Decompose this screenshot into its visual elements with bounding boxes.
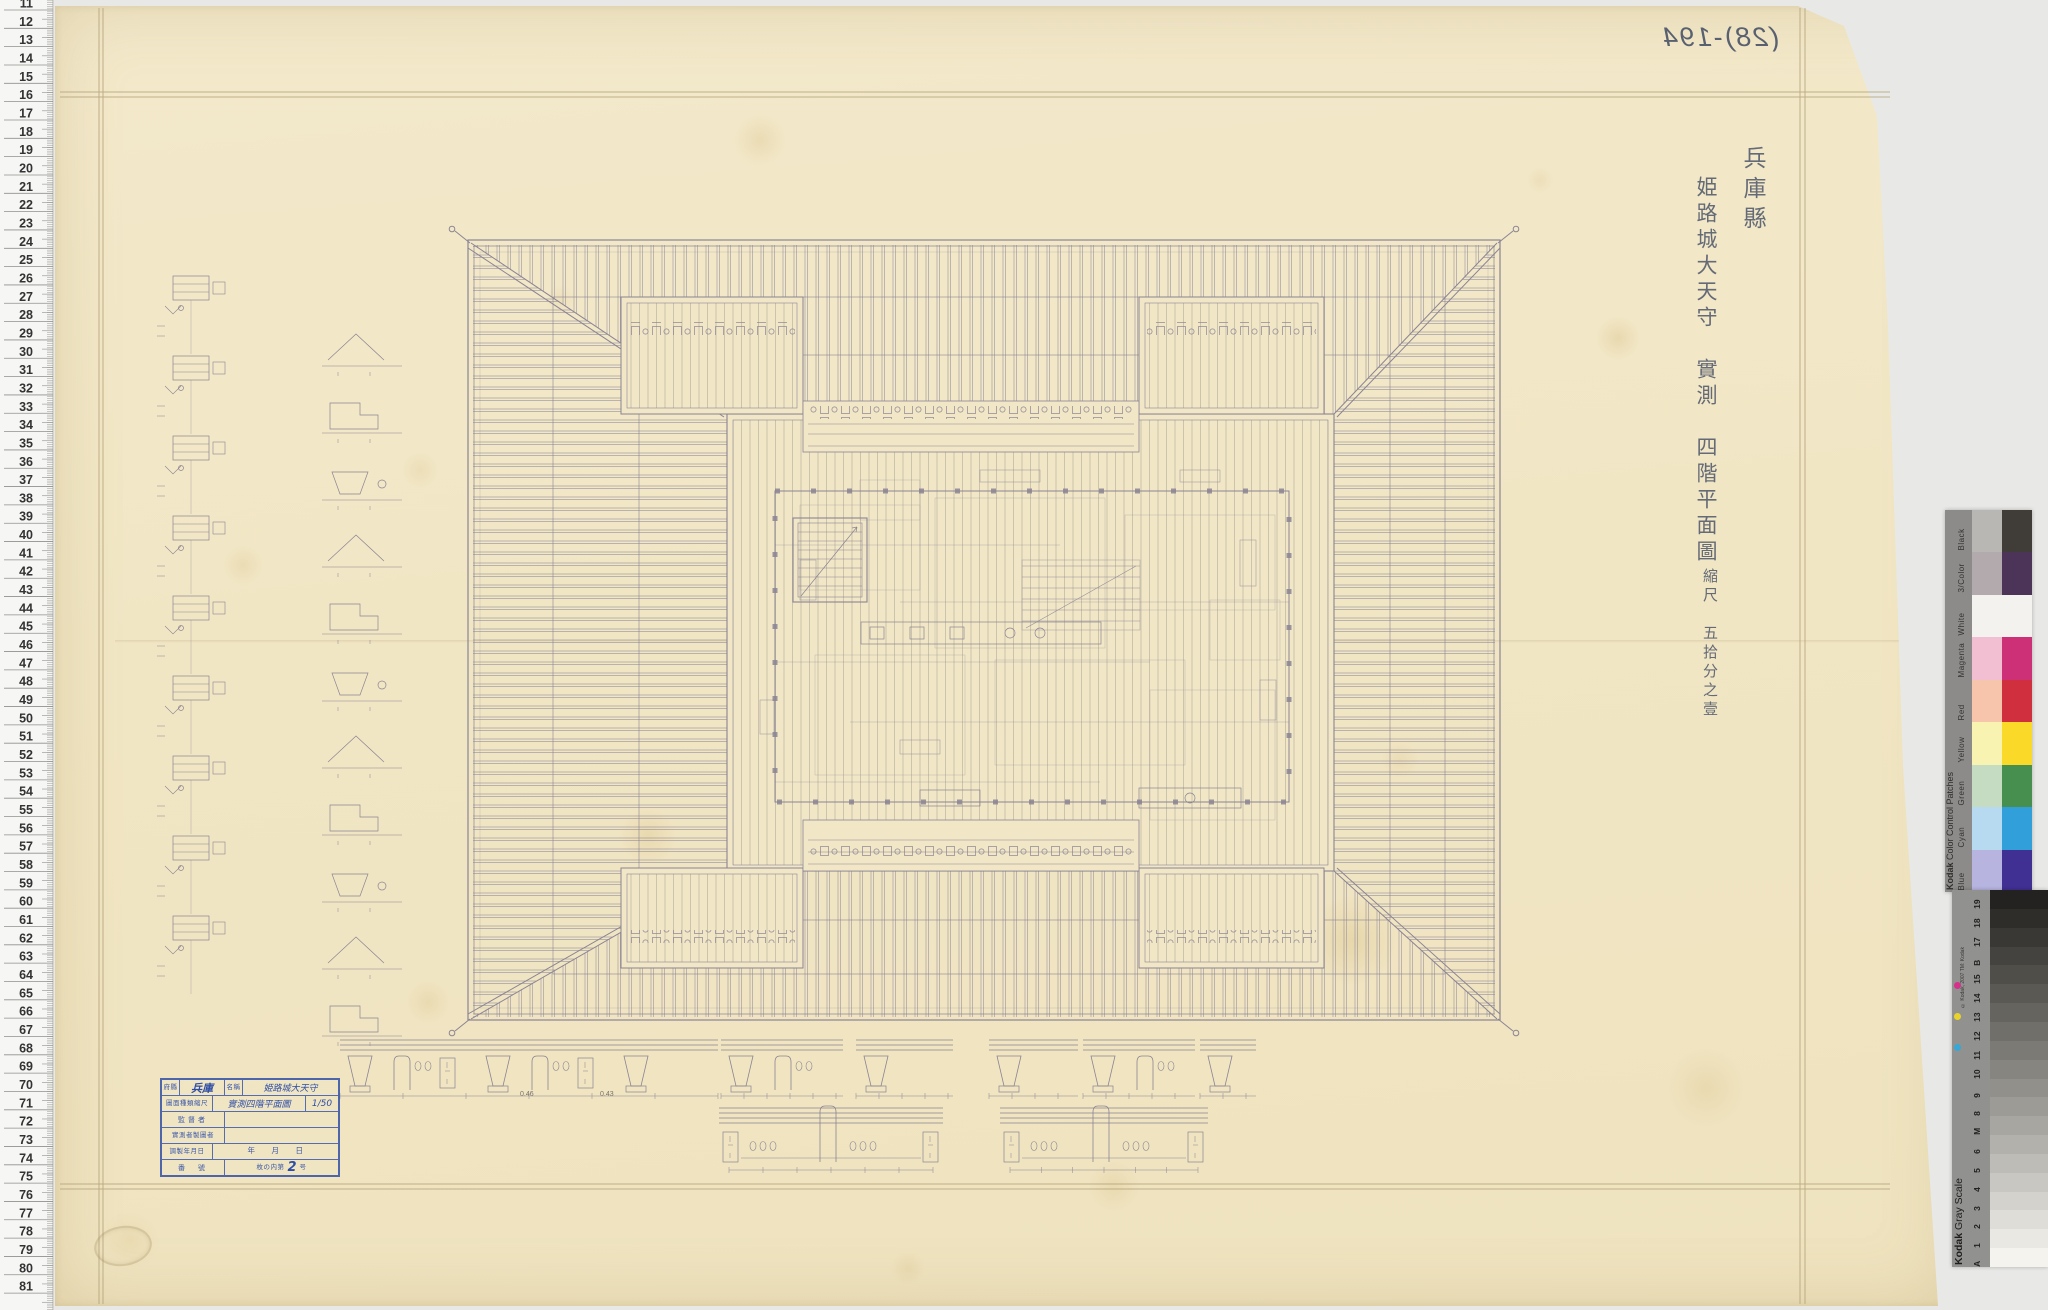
title-block-row-number: 番 號 枚の内第 2 号 — [162, 1160, 338, 1175]
ruler-number: 35 — [19, 436, 33, 450]
color-patch-solid — [2002, 765, 2032, 807]
ruler-number: 17 — [19, 106, 33, 120]
ruler-number: 19 — [19, 143, 33, 157]
ruler-number: 30 — [19, 345, 33, 359]
ruler-number: 71 — [19, 1096, 33, 1110]
gray-scale-step-label: 5 — [1972, 1156, 1982, 1173]
surveyor-label: 實測者製圖者 — [162, 1128, 225, 1143]
beam-section-detail — [1200, 1040, 1256, 1099]
ruler-number: 33 — [19, 400, 33, 414]
dormer-southeast — [1139, 868, 1324, 968]
color-patch-label: Blue — [1957, 852, 1966, 890]
color-patch-label: Magenta — [1957, 639, 1966, 677]
color-patch-row: 3/Color — [1945, 552, 2032, 594]
kodak-color-control-patches: Kodak Color Control Patches Black3/Color… — [1945, 510, 2032, 892]
supervisor-value — [225, 1112, 338, 1127]
ruler-number: 68 — [19, 1041, 33, 1055]
cmy-dot — [1954, 982, 1961, 989]
ruler-number: 27 — [19, 290, 33, 304]
wall-section-sketch — [157, 276, 225, 354]
ruler-number: 22 — [19, 198, 33, 212]
wall-section-sketch — [157, 836, 225, 914]
ruler-number: 59 — [19, 876, 33, 890]
gray-scale-step — [1990, 965, 2048, 984]
ruler-number: 61 — [19, 913, 33, 927]
gray-scale-step — [1990, 1210, 2048, 1229]
ruler-number: 74 — [19, 1151, 33, 1165]
gray-scale-step — [1990, 1116, 2048, 1135]
ruler-number: 42 — [19, 565, 33, 579]
gray-scale-step — [1990, 1154, 2048, 1173]
sill-section-detail — [1000, 1106, 1208, 1173]
left-detail-column — [322, 334, 402, 1046]
color-patch-row: Blue — [1945, 850, 2032, 892]
scan-ruler: 1112131415161718192021222324252627282930… — [0, 0, 54, 1310]
color-patch-solid — [2002, 807, 2032, 849]
wall-section-sketch — [157, 916, 225, 994]
dimension-annotations: 0.46 0.43 — [520, 1091, 614, 1098]
inscription-prefecture: 兵庫縣 — [1736, 146, 1770, 236]
cmy-dot — [1954, 1013, 1961, 1020]
gray-scale-step-label: 9 — [1972, 1081, 1982, 1098]
gray-scale-step-label: 17 — [1972, 930, 1982, 947]
gray-scale-step — [1990, 1229, 2048, 1248]
wall-section-sketch — [157, 356, 225, 434]
gray-scale-step — [1990, 1041, 2048, 1060]
color-patch-tint — [1972, 680, 2002, 722]
color-patch-row: Green — [1945, 765, 2032, 807]
date-value: 年 月 日 — [213, 1144, 338, 1159]
left-detail-strip — [157, 276, 225, 994]
ruler-number: 52 — [19, 748, 33, 762]
eave-profile-sketch — [322, 604, 402, 644]
ruler-number: 43 — [19, 583, 33, 597]
gray-scale-step — [1990, 1060, 2048, 1079]
number-value: 枚の内第 2 号 — [225, 1160, 338, 1175]
number-label: 番 號 — [162, 1160, 225, 1175]
eave-profile-sketch — [322, 403, 402, 443]
ruler-number: 54 — [19, 785, 33, 799]
color-patch-row: Magenta — [1945, 637, 2032, 679]
ruler-number: 34 — [19, 418, 33, 432]
surveyor-value — [225, 1128, 338, 1143]
cmy-dot — [1954, 1044, 1961, 1051]
dormer-southwest — [621, 868, 803, 968]
gray-scale-step — [1990, 1097, 2048, 1116]
number-suffix: 号 — [300, 1164, 307, 1171]
color-patch-row: Yellow — [1945, 722, 2032, 764]
ruler-number: 11 — [20, 0, 33, 11]
ruler-number: 55 — [19, 803, 33, 817]
color-patch-tint — [1972, 850, 2002, 892]
gray-scale-step-label: 1 — [1972, 1231, 1982, 1248]
ruler-number: 47 — [19, 656, 33, 670]
gray-scale-step-label: B — [1972, 949, 1982, 966]
gray-scale-step — [1990, 947, 2048, 966]
gray-scale-step — [1990, 1248, 2048, 1267]
gray-scale-step-label: 13 — [1972, 1005, 1982, 1022]
ruler-number: 46 — [19, 638, 33, 652]
eave-profile-sketch — [322, 736, 402, 778]
ruler-number: 58 — [19, 858, 33, 872]
ruler-number: 51 — [19, 730, 33, 744]
ruler-number: 36 — [19, 455, 33, 469]
color-patch-label: White — [1957, 597, 1966, 635]
archive-number-handwritten: (28)-194 — [1642, 22, 1798, 53]
floor-plan-core — [727, 414, 1334, 871]
gray-scale-step-label: 18 — [1972, 911, 1982, 928]
ruler-number: 73 — [19, 1133, 33, 1147]
ruler-number: 70 — [19, 1078, 33, 1092]
gray-scale-step — [1990, 1192, 2048, 1211]
color-patch-tint — [1972, 510, 2002, 552]
name-value: 姫路城大天守 — [243, 1080, 338, 1095]
gray-scale-step — [1990, 928, 2048, 947]
title-block-row-supervisor: 監督者 — [162, 1112, 338, 1128]
color-patch-solid — [2002, 510, 2032, 552]
ruler-number: 49 — [19, 693, 33, 707]
ruler-number: 37 — [19, 473, 33, 487]
main-plan-drawing — [449, 226, 1519, 1036]
gray-scale-step-label: 4 — [1972, 1175, 1982, 1192]
ruler-number: 18 — [19, 125, 33, 139]
color-patch-tint — [1972, 595, 2002, 637]
ruler-number: 64 — [19, 968, 33, 982]
ruler-number: 16 — [19, 88, 33, 102]
dormer-northwest — [621, 297, 803, 414]
wall-section-sketch — [157, 756, 225, 834]
ruler-number: 62 — [19, 931, 33, 945]
ruler-number: 80 — [19, 1261, 33, 1275]
gray-scale-step — [1990, 1135, 2048, 1154]
ruler-number: 12 — [19, 15, 33, 29]
ruler-number: 81 — [19, 1280, 33, 1294]
ruler-number: 31 — [19, 363, 33, 377]
color-patch-tint — [1972, 722, 2002, 764]
beam-section-detail — [989, 1040, 1078, 1099]
color-patch-label: Red — [1957, 682, 1966, 720]
ruler-number: 69 — [19, 1060, 33, 1074]
ruler-number: 13 — [19, 33, 33, 47]
ruler-number: 53 — [19, 766, 33, 780]
color-patch-tint — [1972, 637, 2002, 679]
ruler-number: 14 — [19, 51, 33, 65]
ruler-number: 24 — [19, 235, 33, 249]
gray-scale-step — [1990, 1173, 2048, 1192]
ruler-number: 63 — [19, 950, 33, 964]
title-block-stamp: 府縣 兵庫 名稱 姫路城大天守 圖面種類縮尺 實測四階平面圖 1/50 監督者 … — [160, 1078, 340, 1177]
gray-scale-step-label: 6 — [1972, 1137, 1982, 1154]
inscription-title: 姫路城大天守 實測 四階平面圖 — [1690, 176, 1720, 566]
color-patch-tint — [1972, 807, 2002, 849]
ruler-number: 39 — [19, 510, 33, 524]
eave-profile-sketch — [322, 472, 402, 510]
eave-profile-sketch — [322, 874, 402, 912]
gray-scale-step-label: 2 — [1972, 1212, 1982, 1229]
ruler-number: 15 — [19, 70, 33, 84]
ruler-number: 67 — [19, 1023, 33, 1037]
gray-scale-step-label: M — [1972, 1118, 1982, 1135]
eave-profile-sketch — [322, 673, 402, 711]
scale-value: 1/50 — [306, 1096, 338, 1111]
number-digit: 2 — [287, 1160, 296, 1175]
gray-scale-step-label: 11 — [1972, 1043, 1982, 1060]
ruler-number: 20 — [19, 161, 33, 175]
ruler-number: 32 — [19, 381, 33, 395]
color-patch-solid — [2002, 595, 2032, 637]
name-label: 名稱 — [225, 1080, 243, 1095]
color-patch-row: White — [1945, 595, 2032, 637]
ruler-number: 65 — [19, 986, 33, 1000]
gray-scale-step — [1990, 1003, 2048, 1022]
ruler-number: 75 — [19, 1170, 33, 1184]
title-block-row-surveyor: 實測者製圖者 — [162, 1128, 338, 1144]
gray-scale-step-label: 15 — [1972, 967, 1982, 984]
eave-profile-sketch — [322, 334, 402, 376]
ruler-number: 48 — [19, 675, 33, 689]
ruler-number: 72 — [19, 1115, 33, 1129]
wall-section-sketch — [157, 596, 225, 674]
wall-section-sketch — [157, 516, 225, 594]
number-prefix: 枚の内第 — [256, 1164, 284, 1171]
pref-value: 兵庫 — [180, 1080, 225, 1095]
ruler-number: 41 — [19, 546, 33, 560]
supervisor-label: 監督者 — [162, 1112, 225, 1127]
color-patch-tint — [1972, 765, 2002, 807]
ruler-number: 78 — [19, 1225, 33, 1239]
eave-profile-sketch — [322, 535, 402, 577]
color-patch-label: Cyan — [1957, 809, 1966, 847]
type-label: 圖面種類縮尺 — [162, 1096, 213, 1111]
gray-scale-step-label: A — [1972, 1250, 1982, 1267]
beam-section-detail — [856, 1040, 953, 1099]
wall-section-sketch — [157, 676, 225, 754]
gray-scale-step — [1990, 1022, 2048, 1041]
ruler-number: 45 — [19, 620, 33, 634]
color-patch-row: Black — [1945, 510, 2032, 552]
color-patch-solid — [2002, 722, 2032, 764]
color-patch-label: Green — [1957, 767, 1966, 805]
wall-section-sketch — [157, 436, 225, 514]
color-patch-solid — [2002, 637, 2032, 679]
ruler-number: 23 — [19, 216, 33, 230]
gray-scale-step-label: 8 — [1972, 1099, 1982, 1116]
ruler-number: 57 — [19, 840, 33, 854]
ruler-number: 29 — [19, 326, 33, 340]
title-block-row-name: 府縣 兵庫 名稱 姫路城大天守 — [162, 1080, 338, 1096]
gray-scale-title: Kodak Gray Scale — [1953, 1115, 1965, 1265]
ruler-number: 44 — [19, 601, 33, 615]
ruler-number: 60 — [19, 895, 33, 909]
gray-scale-step-label: 10 — [1972, 1062, 1982, 1079]
kodak-gray-scale: Kodak Gray Scale © Kodak, 2007 TM: Kodak… — [1952, 890, 2048, 1267]
ruler-number: 76 — [19, 1188, 33, 1202]
gray-scale-step-label: 19 — [1972, 892, 1982, 909]
ruler-number: 50 — [19, 711, 33, 725]
ruler-number: 40 — [19, 528, 33, 542]
color-patch-row: Red — [1945, 680, 2032, 722]
gable-band-north — [803, 401, 1139, 452]
color-patch-tint — [1972, 552, 2002, 594]
color-patch-label: Yellow — [1957, 724, 1966, 762]
ruler-number: 77 — [19, 1206, 33, 1220]
beam-section-detail — [1083, 1040, 1195, 1099]
type-value: 實測四階平面圖 — [213, 1096, 306, 1111]
gray-scale-step-label: 3 — [1972, 1194, 1982, 1211]
dormer-northeast — [1139, 297, 1324, 414]
color-patch-row: Cyan — [1945, 807, 2032, 849]
date-label: 調製年月日 — [162, 1144, 213, 1159]
gray-scale-step-label: 12 — [1972, 1024, 1982, 1041]
title-block-row-type: 圖面種類縮尺 實測四階平面圖 1/50 — [162, 1096, 338, 1112]
scanned-document-page: { "document": { "mirror_number": "(28)-1… — [0, 0, 2048, 1310]
ruler-number: 38 — [19, 491, 33, 505]
ruler-number: 79 — [19, 1243, 33, 1257]
gray-scale-step-label: 14 — [1972, 986, 1982, 1003]
bottom-section-details — [340, 1040, 1256, 1173]
ruler-number: 21 — [19, 180, 33, 194]
eave-profile-sketch — [322, 937, 402, 979]
title-block-row-date: 調製年月日 年 月 日 — [162, 1144, 338, 1160]
color-patch-label: Black — [1957, 512, 1966, 550]
ruler-number: 26 — [19, 271, 33, 285]
gray-scale-step — [1990, 890, 2048, 909]
ruler-number: 66 — [19, 1005, 33, 1019]
color-patch-solid — [2002, 552, 2032, 594]
ruler-number: 56 — [19, 821, 33, 835]
ruler-number: 28 — [19, 308, 33, 322]
gray-scale-copyright: © Kodak, 2007 TM: Kodak — [1960, 898, 1966, 1008]
eave-profile-sketch — [322, 805, 402, 845]
gray-scale-step — [1990, 1079, 2048, 1098]
color-patch-label: 3/Color — [1957, 554, 1966, 592]
pref-label: 府縣 — [162, 1080, 180, 1095]
color-patch-solid — [2002, 850, 2032, 892]
gray-scale-step — [1990, 984, 2048, 1003]
sill-section-detail — [719, 1106, 943, 1173]
ruler-number: 25 — [19, 253, 33, 267]
gray-scale-step — [1990, 909, 2048, 928]
dim-annotation: 0.43 — [600, 1091, 614, 1098]
inscription-scale: 縮尺 五拾分之壹 — [1699, 568, 1720, 720]
dim-annotation: 0.46 — [520, 1091, 534, 1098]
ruler-body — [0, 0, 54, 1310]
color-patch-solid — [2002, 680, 2032, 722]
gable-band-south — [803, 820, 1139, 871]
beam-section-detail — [721, 1040, 843, 1099]
